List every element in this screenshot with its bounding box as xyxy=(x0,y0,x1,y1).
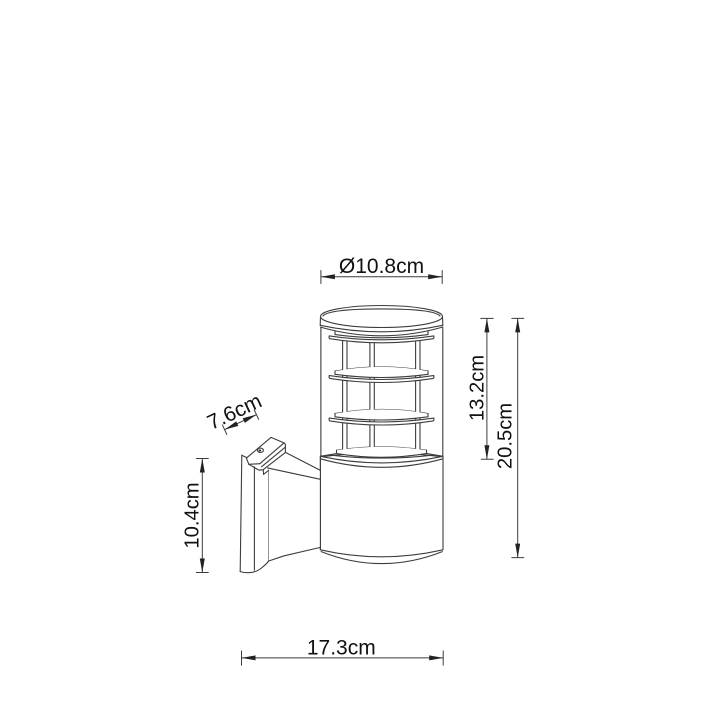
svg-text:10.4cm: 10.4cm xyxy=(181,482,203,548)
svg-text:13.2cm: 13.2cm xyxy=(467,355,489,421)
svg-text:17.3cm: 17.3cm xyxy=(307,637,376,660)
svg-text:Ø10.8cm: Ø10.8cm xyxy=(339,255,424,278)
svg-text:7.6cm: 7.6cm xyxy=(204,390,266,435)
svg-text:20.5cm: 20.5cm xyxy=(495,403,517,469)
